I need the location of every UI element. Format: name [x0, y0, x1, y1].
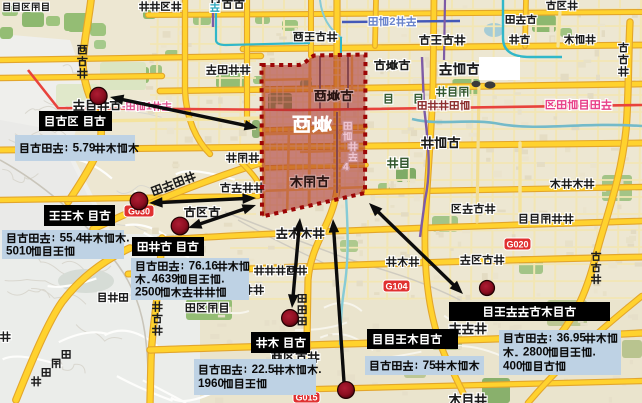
svg-text:5010: 5010 — [6, 245, 33, 258]
svg-text:75: 75 — [419, 359, 436, 372]
svg-text:36.95: 36.95 — [553, 332, 586, 345]
svg-text:76.16: 76.16 — [185, 260, 218, 273]
svg-text:.: . — [318, 363, 321, 376]
svg-text:G104: G104 — [385, 282, 407, 292]
svg-text:4: 4 — [343, 162, 349, 173]
svg-text:.: . — [593, 346, 596, 359]
svg-text:.: . — [221, 273, 224, 286]
svg-text:2500: 2500 — [135, 286, 162, 299]
svg-text:4639: 4639 — [152, 273, 179, 286]
svg-text:2: 2 — [389, 16, 395, 28]
svg-text:400: 400 — [503, 360, 523, 373]
svg-text:1960: 1960 — [198, 377, 225, 390]
svg-text:.: . — [126, 232, 129, 245]
svg-text:2800: 2800 — [520, 346, 550, 359]
svg-text:22.5: 22.5 — [248, 363, 274, 376]
svg-text:5.79: 5.79 — [69, 142, 95, 155]
svg-text:G020: G020 — [506, 240, 528, 250]
svg-text:55.4: 55.4 — [56, 232, 82, 245]
